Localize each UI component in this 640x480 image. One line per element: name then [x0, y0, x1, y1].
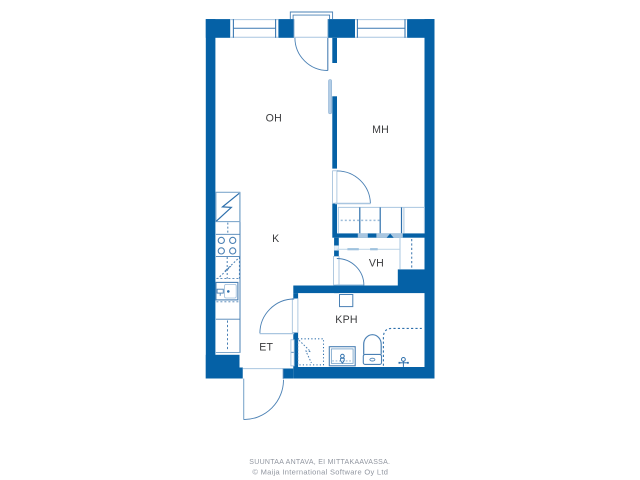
svg-text:OH: OH	[266, 113, 282, 125]
svg-text:SUUNTAA ANTAVA, EI MITTAKAAVAS: SUUNTAA ANTAVA, EI MITTAKAAVASSA.	[249, 459, 390, 466]
svg-text:MH: MH	[372, 124, 389, 136]
svg-text:K: K	[272, 233, 279, 245]
svg-text:KPH: KPH	[335, 314, 357, 326]
svg-text:VH: VH	[369, 257, 384, 269]
svg-text:ET: ET	[259, 342, 273, 354]
svg-text:© Maija International Software: © Maija International Software Oy Ltd	[252, 467, 388, 476]
